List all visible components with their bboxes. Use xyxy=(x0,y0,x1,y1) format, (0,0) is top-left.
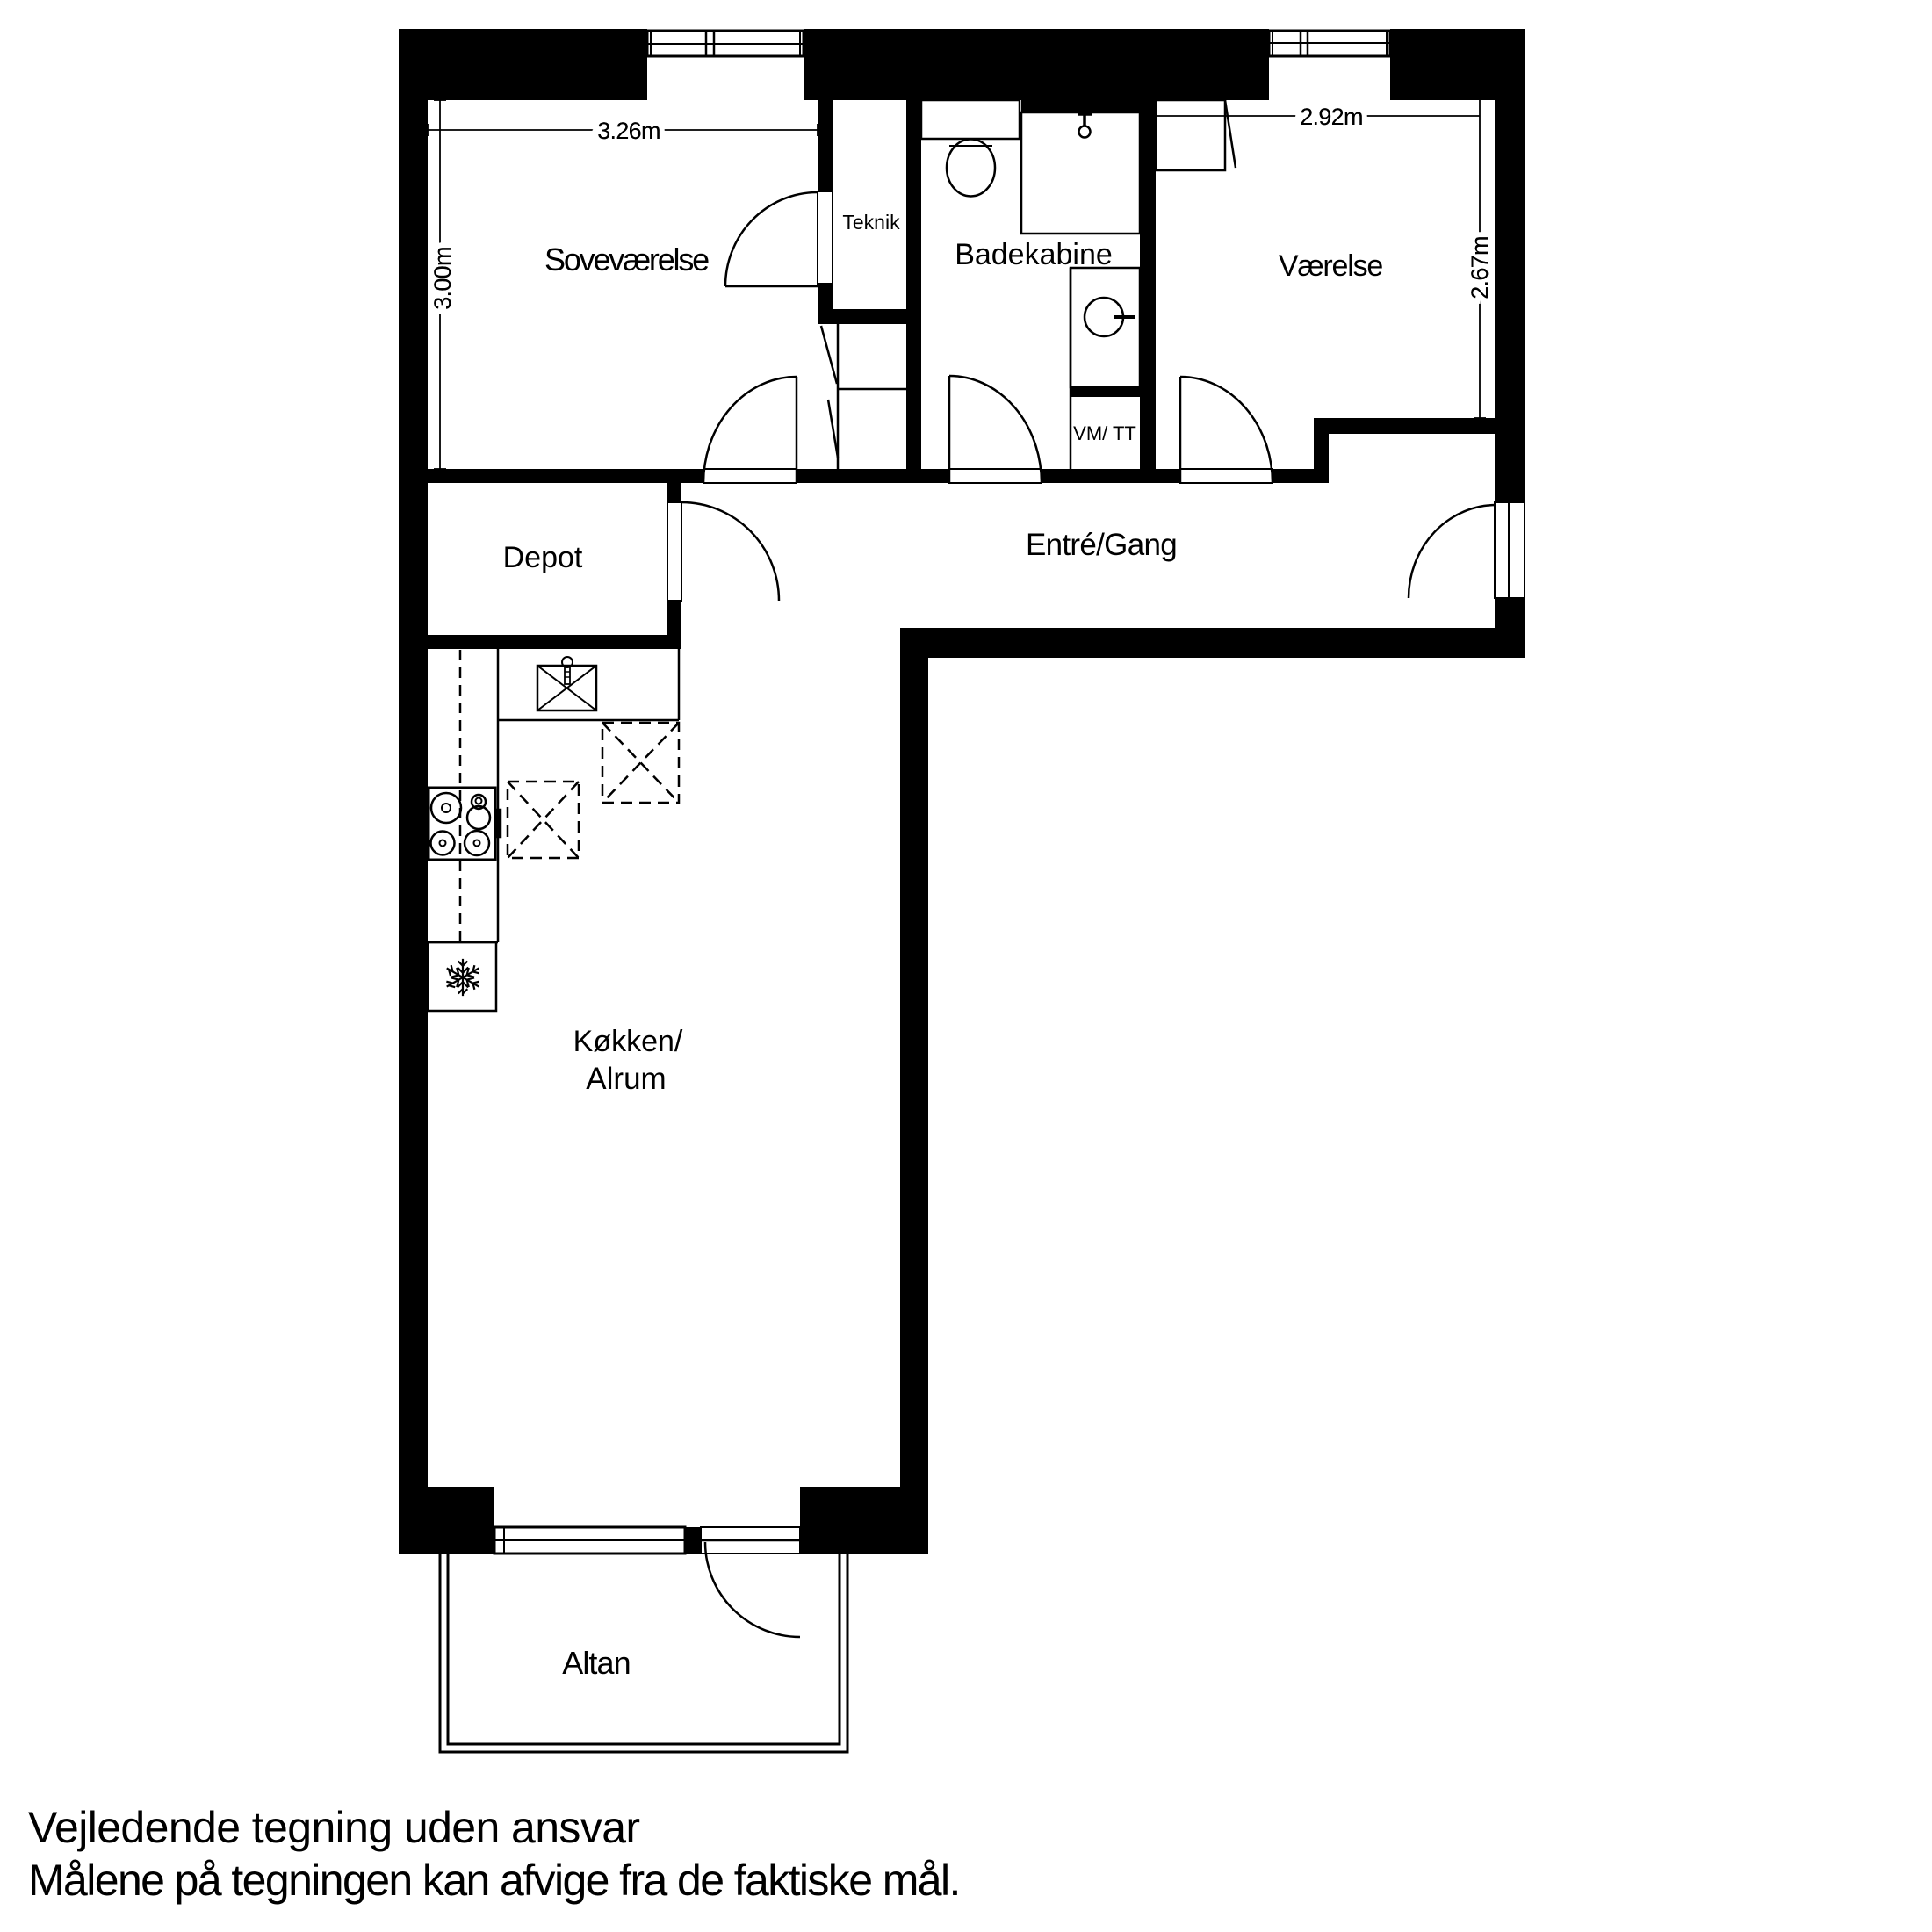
svg-text:Alrum: Alrum xyxy=(586,1062,666,1096)
svg-text:2.92m: 2.92m xyxy=(1300,104,1363,130)
svg-text:2.67m: 2.67m xyxy=(1467,236,1493,299)
svg-text:Soveværelse: Soveværelse xyxy=(544,241,709,278)
svg-text:Depot: Depot xyxy=(503,541,583,574)
svg-text:Køkken/: Køkken/ xyxy=(573,1025,683,1058)
svg-text:3.26m: 3.26m xyxy=(597,118,660,144)
svg-text:Vejledende tegning uden ansvar: Vejledende tegning uden ansvar xyxy=(28,1803,639,1852)
svg-text:Entré/Gang: Entré/Gang xyxy=(1026,528,1177,562)
svg-text:Målene på tegningen kan afvige: Målene på tegningen kan afvige fra de fa… xyxy=(28,1856,960,1905)
svg-text:Teknik: Teknik xyxy=(842,211,900,234)
svg-text:VM/ TT: VM/ TT xyxy=(1073,422,1136,444)
svg-text:Værelse: Værelse xyxy=(1279,249,1382,283)
svg-text:Badekabine: Badekabine xyxy=(955,238,1113,271)
svg-text:Altan: Altan xyxy=(562,1645,631,1681)
svg-text:3.00m: 3.00m xyxy=(429,247,456,310)
